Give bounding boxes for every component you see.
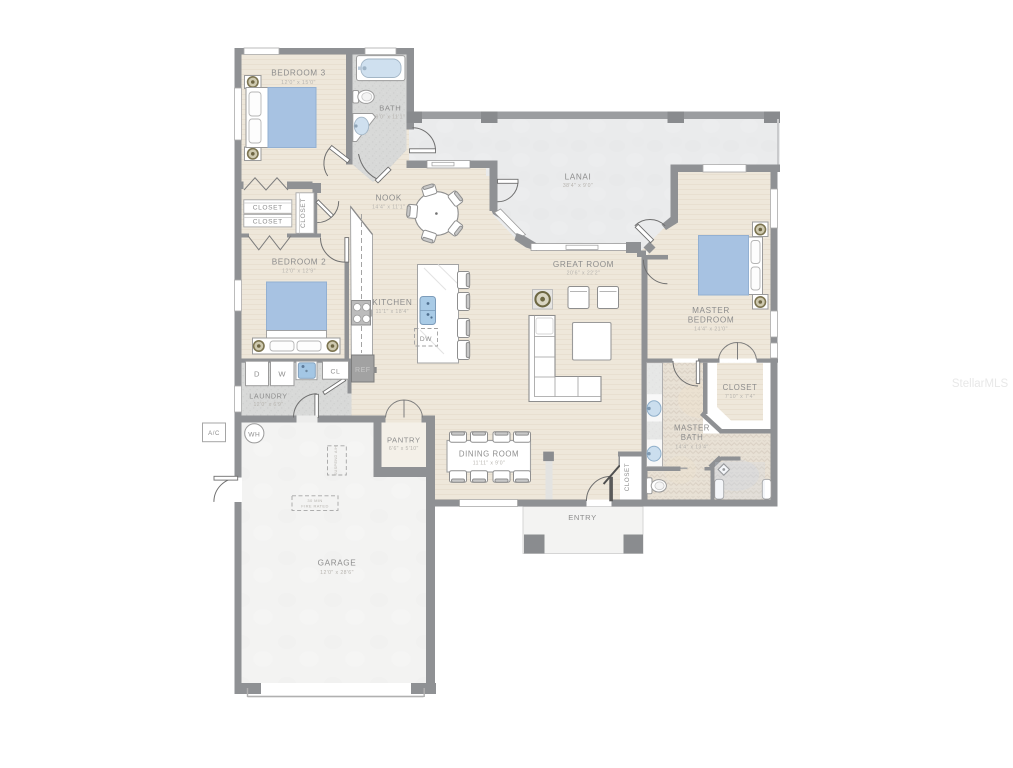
- svg-text:WH: WH: [248, 431, 260, 438]
- svg-text:12'0" x 15'0": 12'0" x 15'0": [281, 80, 316, 86]
- svg-text:GREAT ROOM: GREAT ROOM: [553, 260, 614, 269]
- svg-text:FIRE RATED: FIRE RATED: [301, 504, 328, 509]
- svg-text:12'0" x 28'6": 12'0" x 28'6": [320, 570, 354, 576]
- svg-text:CLOSET: CLOSET: [300, 198, 307, 228]
- svg-text:14'4" x 21'0": 14'4" x 21'0": [694, 327, 728, 333]
- svg-text:A/C: A/C: [208, 431, 220, 437]
- svg-text:D: D: [254, 370, 260, 379]
- svg-text:CLOSET: CLOSET: [624, 463, 631, 491]
- svg-text:11'1" x 18'4": 11'1" x 18'4": [376, 309, 409, 315]
- svg-text:MASTER: MASTER: [674, 424, 710, 433]
- svg-text:11'11" x 9'0": 11'11" x 9'0": [473, 461, 505, 467]
- svg-text:MASTER: MASTER: [692, 306, 730, 315]
- svg-text:StellarMLS: StellarMLS: [952, 378, 1009, 390]
- svg-text:BEDROOM: BEDROOM: [688, 316, 735, 325]
- svg-text:LAUNDRY: LAUNDRY: [249, 392, 287, 401]
- svg-text:12'0" x 12'9": 12'0" x 12'9": [282, 269, 316, 275]
- svg-text:DW: DW: [420, 336, 432, 343]
- svg-text:14'4" x 13'4": 14'4" x 13'4": [675, 445, 708, 451]
- svg-text:38'4" x 9'0": 38'4" x 9'0": [563, 183, 593, 189]
- svg-text:SUSPEND A/H: SUSPEND A/H: [334, 446, 338, 476]
- svg-text:CLOSET: CLOSET: [253, 205, 283, 212]
- svg-text:CLOSET: CLOSET: [253, 219, 283, 226]
- svg-text:9'0" x 11'1": 9'0" x 11'1": [376, 115, 406, 121]
- svg-text:DINING ROOM: DINING ROOM: [459, 450, 519, 459]
- svg-text:BATH: BATH: [681, 433, 704, 442]
- svg-text:CLOSET: CLOSET: [723, 383, 758, 392]
- svg-text:W: W: [278, 370, 286, 379]
- svg-text:LANAI: LANAI: [565, 173, 592, 182]
- svg-text:ENTRY: ENTRY: [568, 513, 597, 522]
- svg-text:NOOK: NOOK: [375, 194, 402, 203]
- svg-text:GARAGE: GARAGE: [318, 559, 357, 568]
- svg-text:7'10" x 7'4": 7'10" x 7'4": [725, 394, 755, 400]
- svg-text:BATH: BATH: [379, 104, 401, 113]
- svg-text:PANTRY: PANTRY: [387, 436, 421, 445]
- svg-text:BEDROOM 2: BEDROOM 2: [272, 258, 327, 267]
- svg-text:20'6" x 22'2": 20'6" x 22'2": [567, 271, 601, 277]
- svg-text:14'4" x 11'1": 14'4" x 11'1": [372, 205, 405, 211]
- svg-text:6'6" x 5'10": 6'6" x 5'10": [389, 446, 419, 452]
- svg-text:KITCHEN: KITCHEN: [372, 298, 412, 307]
- svg-text:CL: CL: [331, 369, 341, 376]
- svg-text:REF: REF: [355, 367, 371, 374]
- svg-text:BEDROOM 3: BEDROOM 3: [271, 69, 326, 78]
- svg-text:30 MIN: 30 MIN: [307, 498, 322, 503]
- svg-text:12'0" x 6'9": 12'0" x 6'9": [254, 402, 284, 408]
